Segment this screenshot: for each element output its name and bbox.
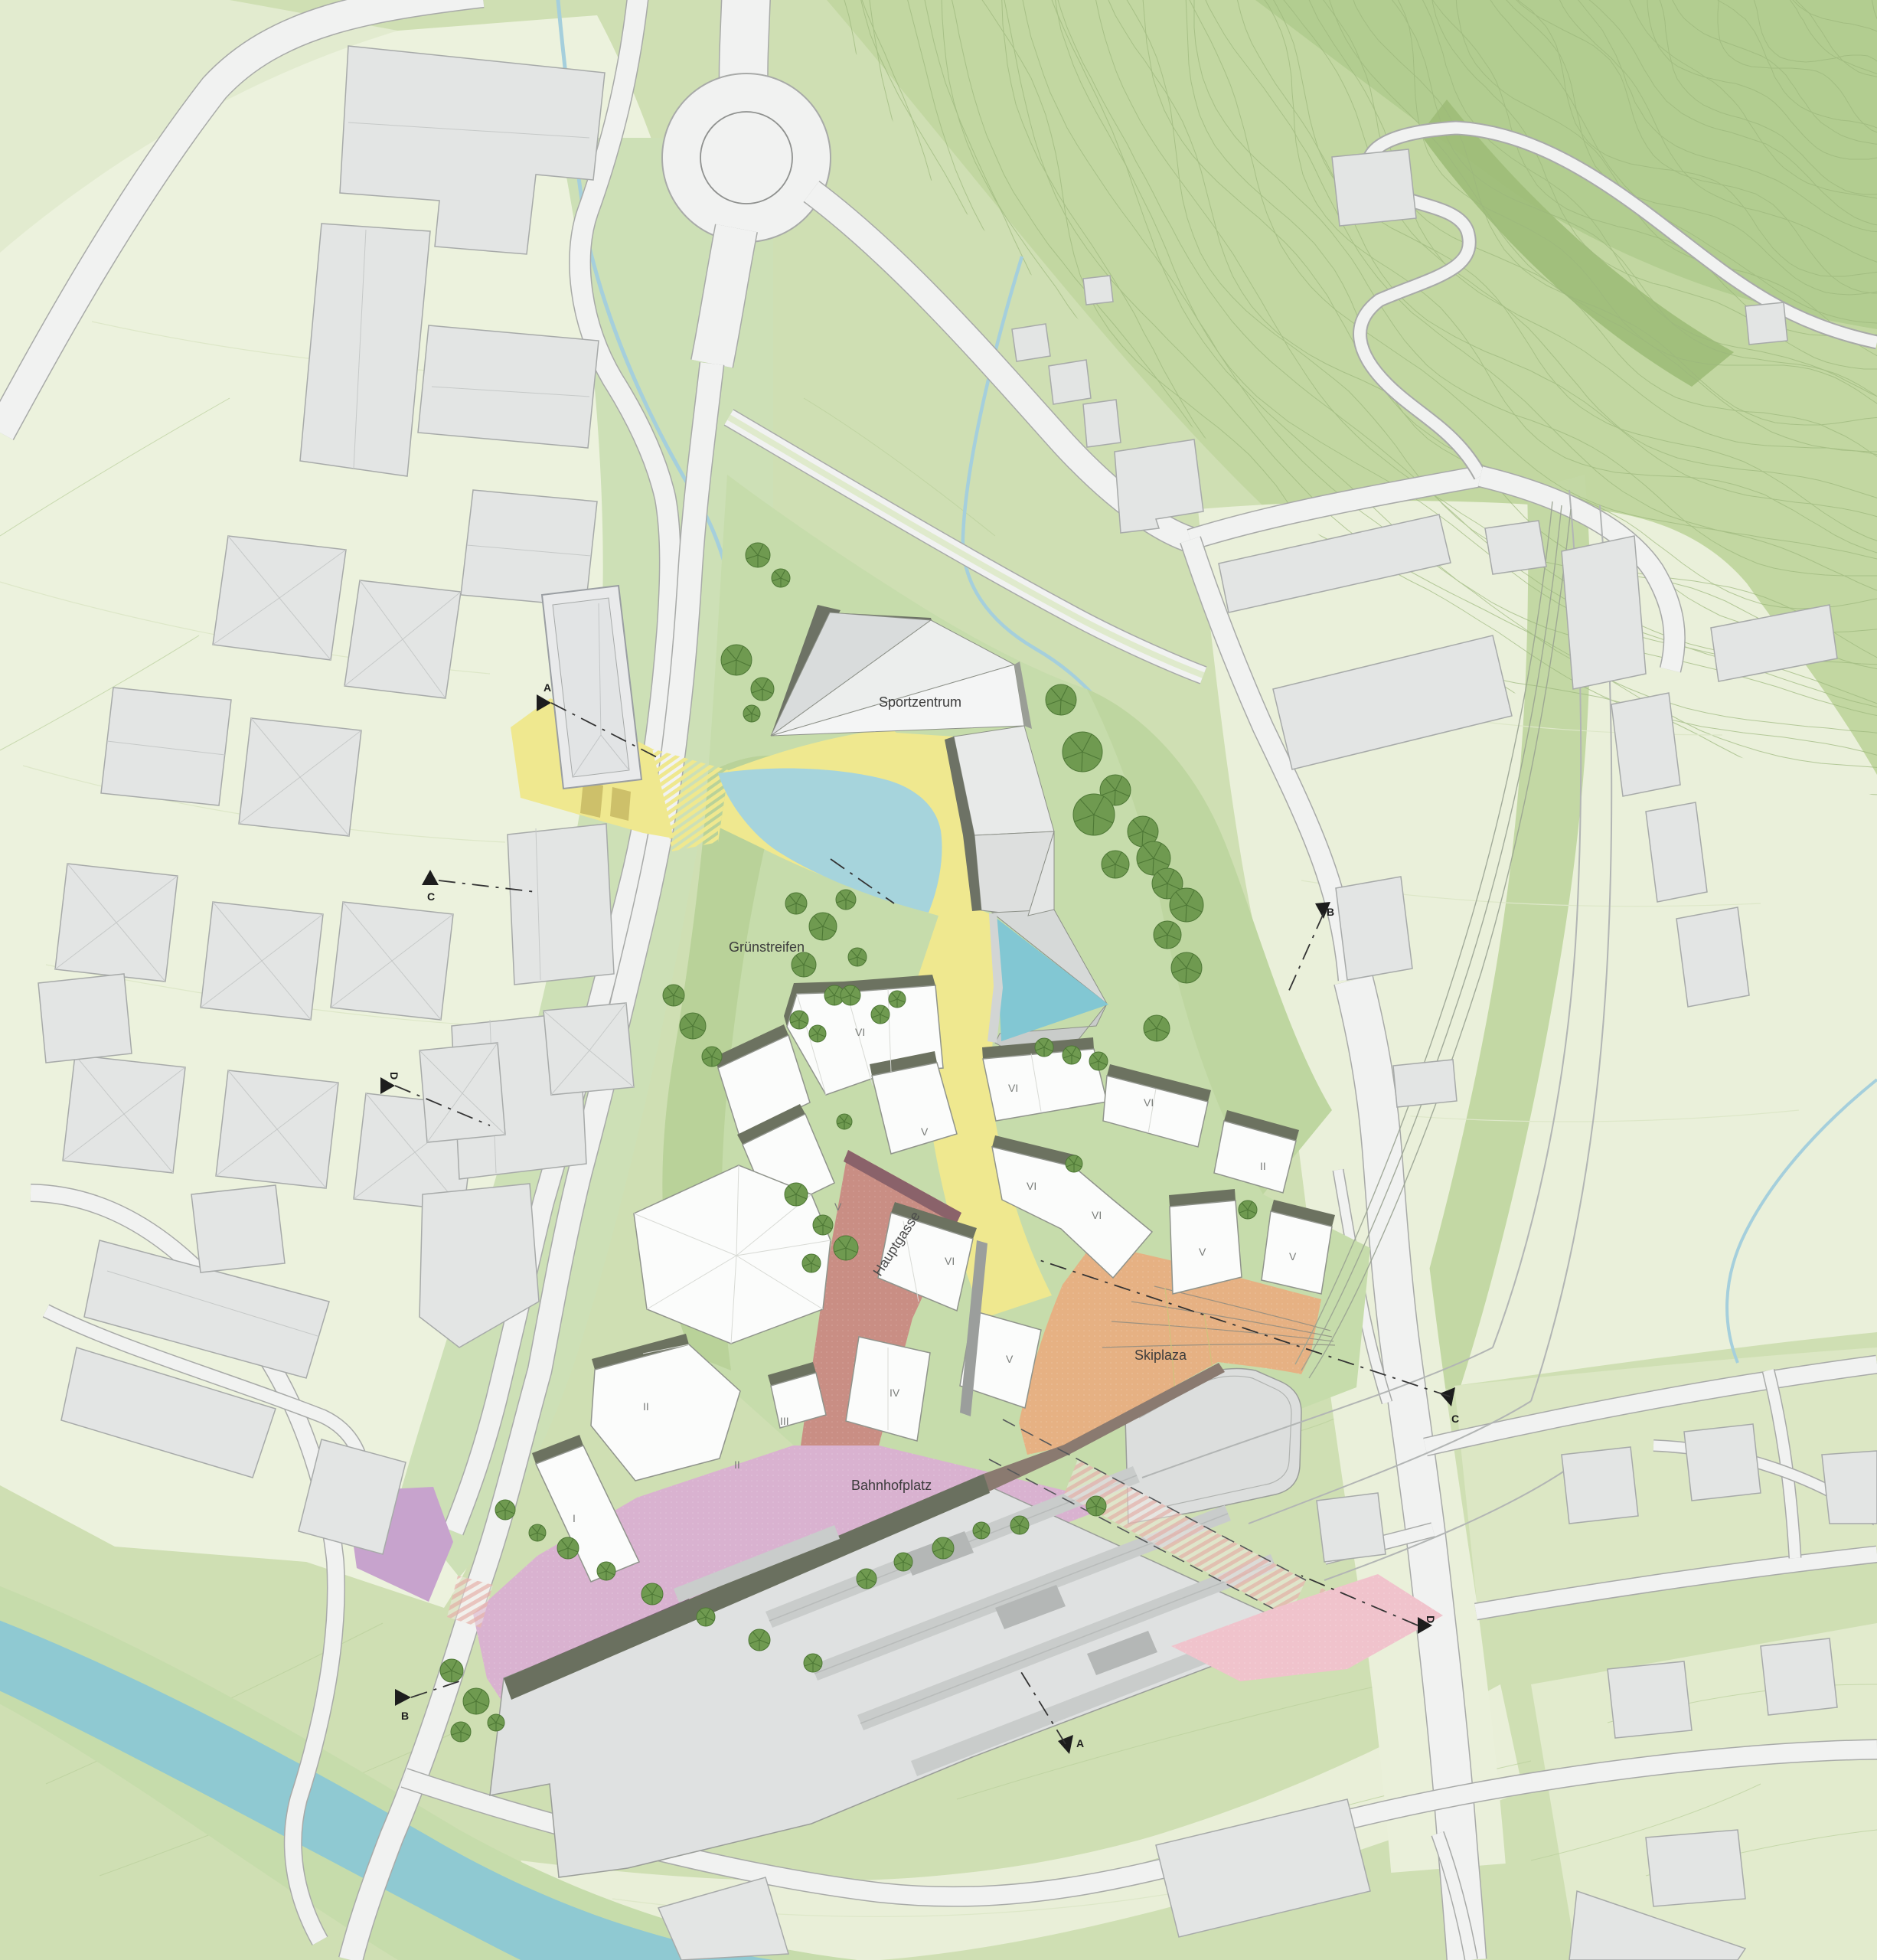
svg-text:VI: VI [1092,1209,1102,1221]
svg-text:III: III [780,1415,789,1427]
svg-text:Sportzentrum: Sportzentrum [879,694,961,710]
svg-text:A: A [1076,1737,1084,1749]
svg-text:V: V [834,1200,842,1213]
svg-text:V: V [921,1125,929,1138]
svg-text:C: C [427,890,435,903]
svg-text:IV: IV [890,1387,900,1399]
svg-text:VI: VI [945,1255,955,1267]
svg-text:Grünstreifen: Grünstreifen [729,939,805,955]
svg-text:V: V [1006,1353,1014,1365]
svg-text:Bahnhofplatz: Bahnhofplatz [851,1478,932,1493]
svg-text:VI: VI [1144,1096,1154,1109]
svg-text:VI: VI [855,1026,865,1038]
svg-text:VI: VI [1027,1180,1036,1192]
svg-text:I: I [573,1512,576,1524]
svg-text:II: II [734,1459,740,1471]
svg-text:II: II [643,1400,649,1413]
svg-text:A: A [544,681,551,694]
svg-text:Skiplaza: Skiplaza [1134,1347,1187,1363]
svg-text:II: II [1260,1160,1266,1172]
svg-text:B: B [1327,906,1334,918]
svg-text:VI: VI [1008,1082,1018,1094]
svg-text:D: D [388,1072,400,1080]
svg-text:C: C [1451,1413,1459,1425]
svg-text:B: B [401,1710,409,1722]
svg-text:V: V [1199,1246,1206,1258]
svg-text:V: V [1289,1250,1297,1263]
svg-text:D: D [1425,1615,1437,1623]
